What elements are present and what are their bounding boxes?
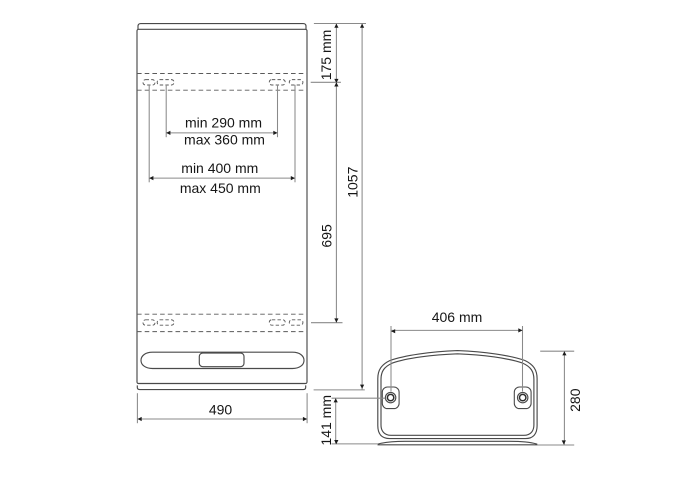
svg-text:406 mm: 406 mm bbox=[432, 309, 483, 325]
svg-text:max 450 mm: max 450 mm bbox=[180, 180, 261, 196]
svg-text:min 290 mm: min 290 mm bbox=[185, 115, 262, 131]
svg-text:141 mm: 141 mm bbox=[318, 395, 334, 446]
svg-text:280: 280 bbox=[567, 388, 583, 412]
svg-text:min 400 mm: min 400 mm bbox=[181, 160, 258, 176]
svg-text:175 mm: 175 mm bbox=[318, 30, 334, 81]
svg-text:490: 490 bbox=[209, 402, 233, 418]
svg-text:max 360 mm: max 360 mm bbox=[184, 132, 265, 148]
svg-text:695: 695 bbox=[318, 224, 334, 248]
svg-text:1057: 1057 bbox=[345, 166, 361, 197]
